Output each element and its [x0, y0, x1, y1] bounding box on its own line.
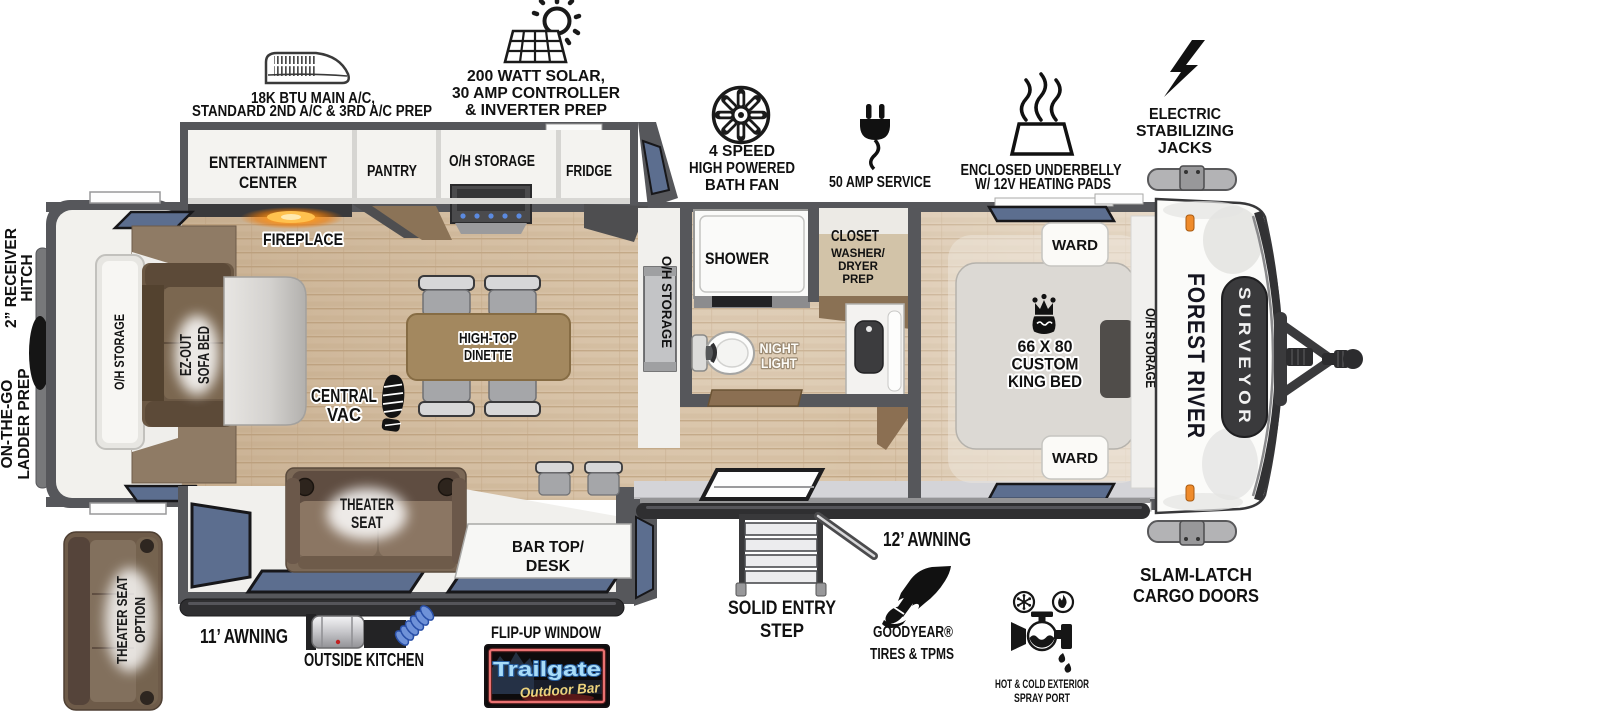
svg-text:VAC: VAC [327, 405, 361, 425]
svg-text:DRYER: DRYER [838, 261, 879, 273]
svg-text:OPTION: OPTION [132, 597, 149, 643]
svg-text:KING BED: KING BED [1008, 372, 1082, 391]
svg-text:NIGHT: NIGHT [760, 341, 800, 356]
svg-text:FLIP-UP WINDOW: FLIP-UP WINDOW [491, 623, 602, 642]
svg-text:SPRAY PORT: SPRAY PORT [1014, 691, 1070, 705]
svg-text:ON-THE-GO: ON-THE-GO [0, 380, 16, 469]
svg-text:ELECTRIC: ELECTRIC [1149, 106, 1221, 123]
svg-text:FRIDGE: FRIDGE [566, 163, 612, 180]
svg-text:WASHER/: WASHER/ [831, 248, 885, 260]
svg-text:STABILIZING: STABILIZING [1136, 123, 1234, 140]
svg-text:DESK: DESK [526, 558, 571, 575]
svg-text:O/H STORAGE: O/H STORAGE [449, 153, 535, 170]
svg-text:WARD: WARD [1052, 237, 1098, 254]
svg-text:11’ AWNING: 11’ AWNING [200, 626, 288, 648]
svg-text:66 X 80: 66 X 80 [1018, 337, 1073, 356]
svg-text:CUSTOM: CUSTOM [1012, 355, 1079, 374]
svg-text:SURVEYOR: SURVEYOR [1235, 287, 1254, 427]
svg-text:ENTERTAINMENT: ENTERTAINMENT [209, 153, 327, 172]
svg-text:CENTRAL: CENTRAL [311, 386, 377, 406]
svg-text:Trailgate: Trailgate [493, 659, 601, 681]
svg-text:2” RECEIVER: 2” RECEIVER [3, 228, 20, 328]
svg-text:SOFA BED: SOFA BED [196, 326, 213, 384]
svg-text:FIREPLACE: FIREPLACE [263, 231, 343, 249]
svg-text:THEATER: THEATER [340, 495, 394, 514]
svg-text:SHOWER: SHOWER [705, 249, 769, 268]
svg-text:EZ-OUT: EZ-OUT [178, 334, 195, 376]
svg-text:STANDARD 2ND A/C & 3RD A/C PRE: STANDARD 2ND A/C & 3RD A/C PREP [192, 103, 432, 120]
svg-text:FOREST RIVER: FOREST RIVER [1182, 273, 1209, 439]
svg-text:DINETTE: DINETTE [464, 347, 512, 364]
svg-text:SLAM-LATCH: SLAM-LATCH [1140, 565, 1252, 585]
svg-text:WARD: WARD [1052, 450, 1098, 467]
svg-text:O/H STORAGE: O/H STORAGE [659, 256, 675, 348]
svg-text:& INVERTER PREP: & INVERTER PREP [465, 102, 607, 119]
svg-text:THEATER SEAT: THEATER SEAT [114, 576, 131, 664]
svg-text:SOLID ENTRY: SOLID ENTRY [728, 598, 836, 619]
svg-text:LIGHT: LIGHT [761, 356, 798, 371]
svg-text:CLOSET: CLOSET [831, 228, 879, 245]
svg-text:JACKS: JACKS [1158, 140, 1212, 157]
svg-text:OUTSIDE KITCHEN: OUTSIDE KITCHEN [304, 650, 424, 670]
svg-text:HIGH POWERED: HIGH POWERED [689, 160, 795, 177]
svg-text:50 AMP SERVICE: 50 AMP SERVICE [829, 174, 931, 191]
svg-text:12’ AWNING: 12’ AWNING [883, 529, 971, 551]
svg-text:TIRES & TPMS: TIRES & TPMS [870, 646, 954, 663]
svg-text:200 WATT SOLAR,: 200 WATT SOLAR, [467, 68, 605, 85]
svg-text:BATH FAN: BATH FAN [705, 177, 779, 194]
svg-text:BAR TOP/: BAR TOP/ [512, 539, 585, 556]
svg-text:HIGH-TOP: HIGH-TOP [459, 330, 517, 347]
svg-text:STEP: STEP [760, 621, 804, 642]
svg-text:LADDER PREP: LADDER PREP [16, 368, 33, 479]
svg-text:PREP: PREP [842, 274, 874, 286]
svg-text:O/H STORAGE: O/H STORAGE [112, 314, 127, 390]
svg-text:4 SPEED: 4 SPEED [709, 143, 775, 160]
svg-text:30 AMP CONTROLLER: 30 AMP CONTROLLER [452, 85, 620, 102]
svg-text:SEAT: SEAT [351, 513, 383, 532]
svg-text:PANTRY: PANTRY [367, 163, 418, 180]
svg-text:W/ 12V HEATING PADS: W/ 12V HEATING PADS [975, 176, 1111, 193]
svg-text:CARGO DOORS: CARGO DOORS [1133, 586, 1259, 606]
svg-text:HOT & COLD EXTERIOR: HOT & COLD EXTERIOR [995, 677, 1089, 691]
svg-text:HITCH: HITCH [19, 254, 36, 301]
svg-text:CENTER: CENTER [239, 173, 297, 192]
svg-text:GOODYEAR®: GOODYEAR® [873, 624, 953, 641]
